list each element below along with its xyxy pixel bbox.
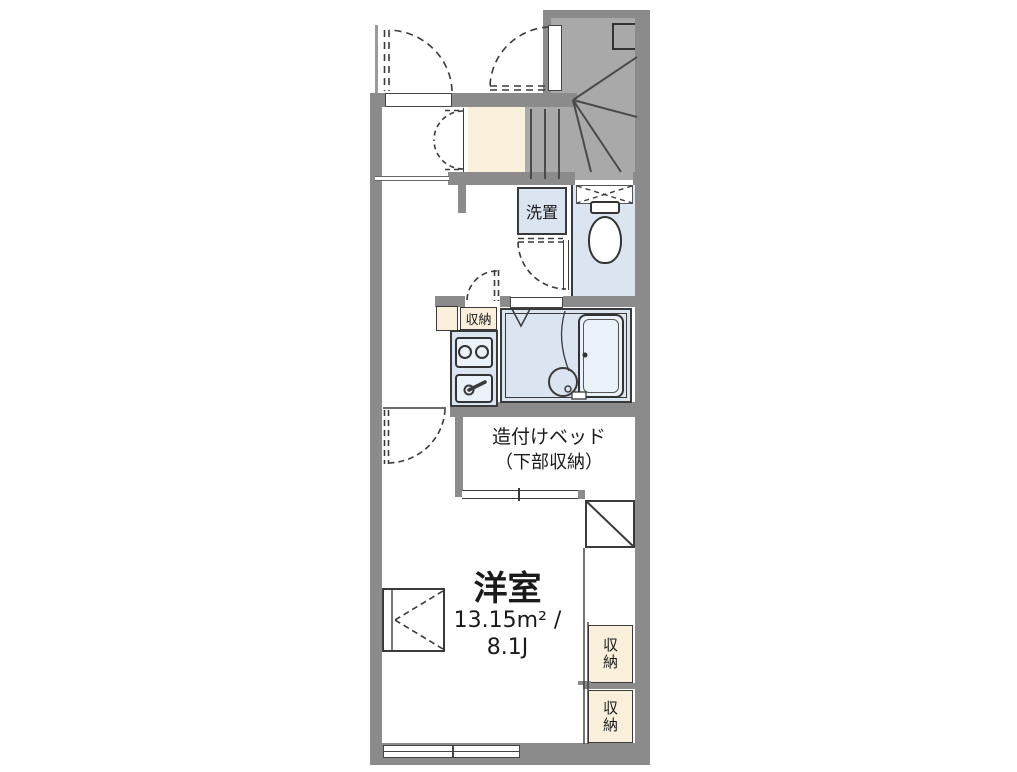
mid-wall-west [448,172,575,185]
upstairs-door-swing [490,27,549,90]
washroom-door-swing [518,239,566,290]
floor-plan: 洗置 収納 造付けベッド （下部収納） 収納 収納 洋室 13.15m² / [0,0,1017,772]
closet-upper-label: 収納 [600,637,621,671]
kitchen-sink [455,374,493,403]
washroom-left-wall [458,185,466,213]
room-size-label: 8.1J [487,635,528,661]
toilet-bowl [588,216,622,264]
right-exterior-wall [635,10,650,765]
genkan-step-edge [375,176,449,181]
entrance-door-swing [385,30,453,91]
room-area-label: 13.15m² / [454,608,562,634]
bed-band-stub [577,490,585,499]
stove-burner-left [458,345,472,359]
closet-lower-label: 収納 [600,700,621,734]
stair-top-wall [543,10,637,18]
hall-storage-box [436,306,458,331]
mid-wall-east [633,172,650,185]
kitchen-storage-box: 収納 [460,307,497,330]
entrance-door-opening [385,93,452,107]
bathtub-inner-line [583,319,619,393]
closet-edge-tick [578,681,591,685]
bed-front-edge [462,490,578,499]
washer-space-box: 洗置 [517,187,567,235]
washroom-door-leaf [563,240,569,290]
porch-edge-line [375,25,378,93]
bed-left-wall [455,402,463,497]
refrigerator-space [585,500,635,548]
bed-label: 造付けベッド [492,425,606,451]
built-in-bed: 造付けベッド （下部収納） [463,419,635,481]
genkan-bifold-swing [434,111,463,170]
stove-burner-right [475,345,489,359]
upstairs-door-leaf [548,25,562,91]
bathtub [578,314,624,398]
kitchen-storage-label: 収納 [465,309,491,328]
corridor-door-swing [467,270,499,301]
bed-front-edge-tick [518,488,520,501]
toilet-tank [590,201,620,214]
side-door-swing [383,408,446,464]
bath-top-wall-c [563,296,635,307]
washer-space-label: 洗置 [526,199,558,223]
left-exterior-wall [370,93,382,765]
closet-lower-box: 収納 [588,690,633,743]
bathroom-door-opening [510,297,563,308]
genkan-floor [468,107,525,172]
main-room-label-block: 洋室 13.15m² / 8.1J [420,560,595,672]
staircase-lower-area [525,107,637,180]
bed-sub-label: （下部収納） [495,451,603,475]
bottom-window-tick [452,745,454,758]
room-name-label: 洋室 [474,571,542,608]
